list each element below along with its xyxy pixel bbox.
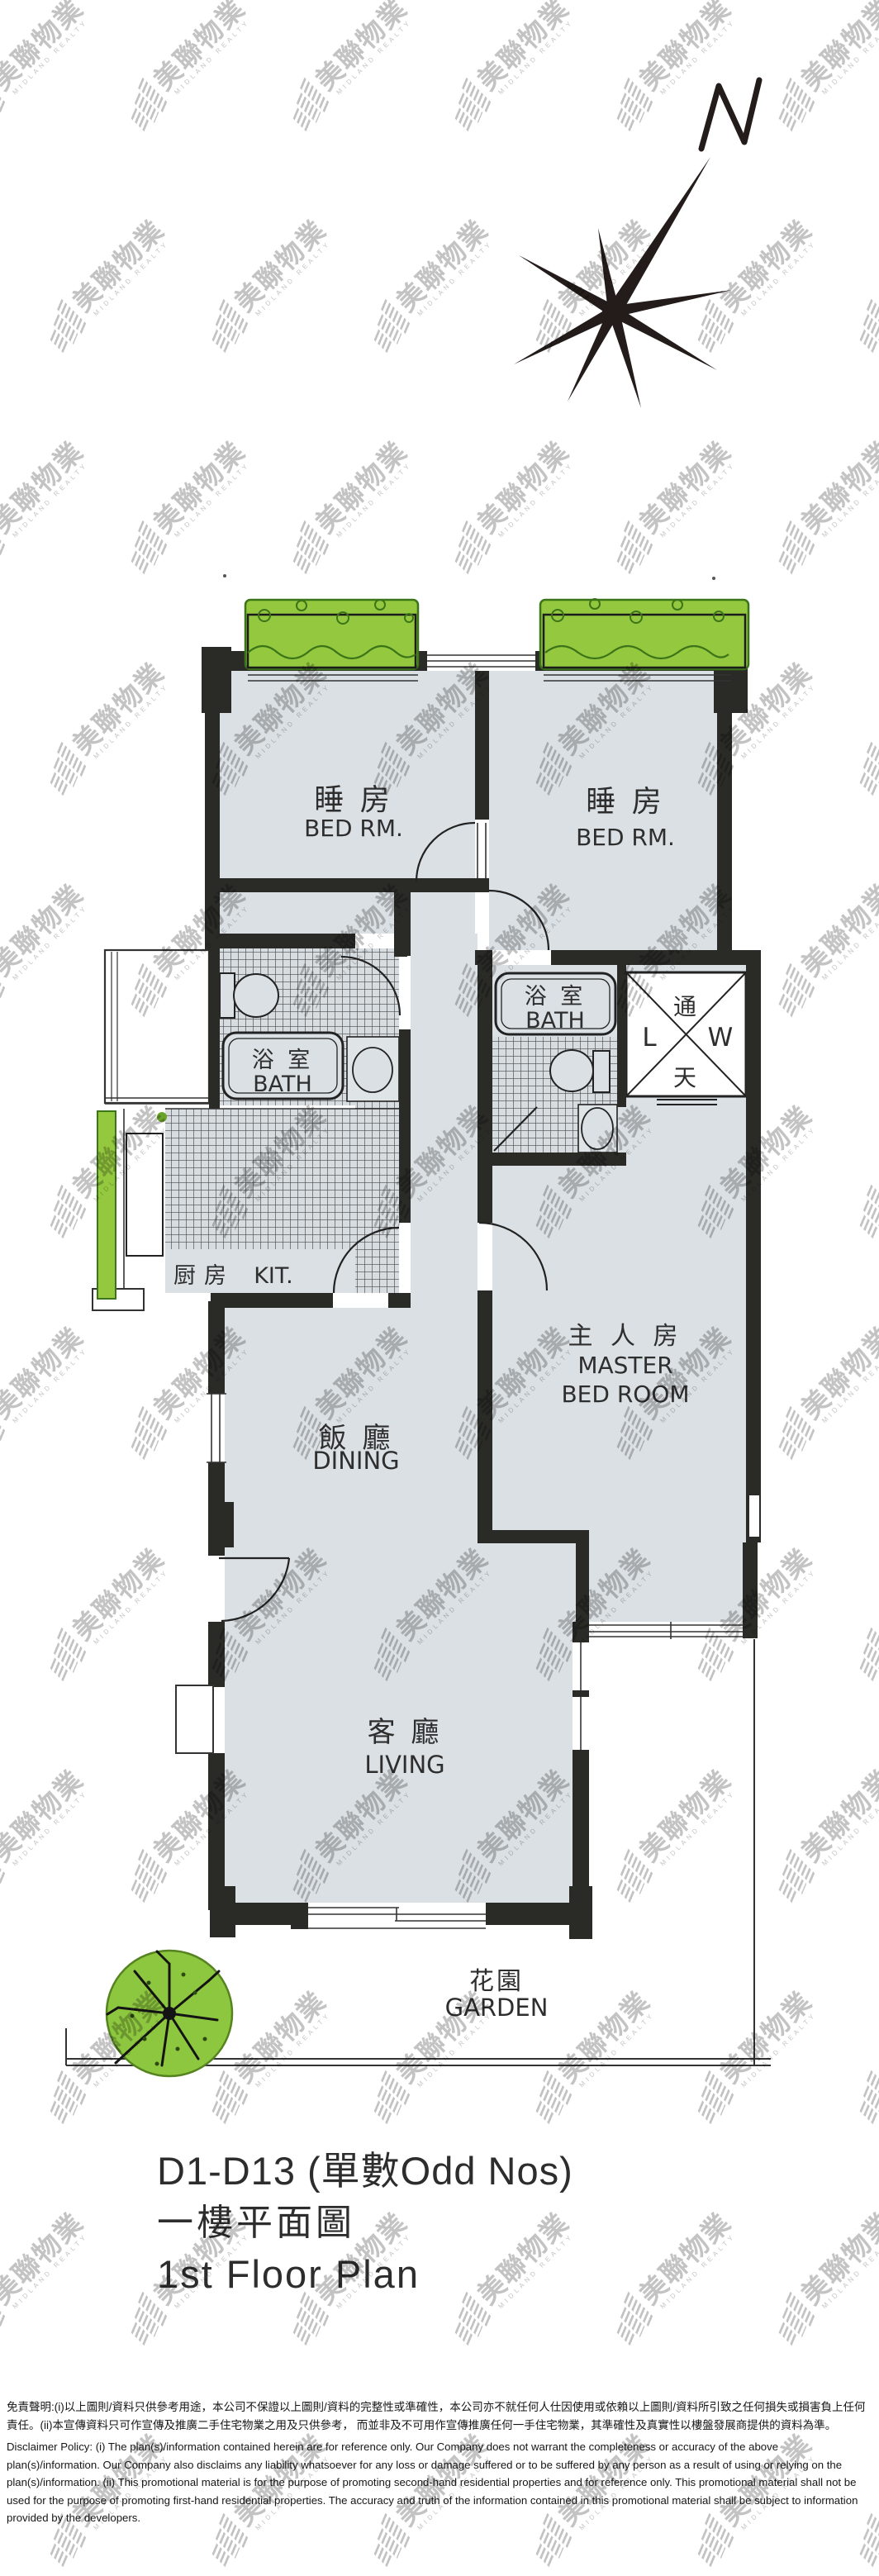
label-lightwell-left: L — [642, 1023, 657, 1053]
label-bath2-en: BATH — [525, 1008, 585, 1034]
label-bedroom1-zh: 睡 房 — [314, 783, 392, 817]
label-garden-zh: 花園 — [469, 1967, 524, 1996]
disclaimer-zh: 免責聲明:(i)以上圖則/資料只供參考用途，本公司不保證以上圖則/資料的完整性或… — [7, 2398, 871, 2435]
compass-rose — [514, 80, 759, 408]
disclaimer-block: 免責聲明:(i)以上圖則/資料只供參考用途，本公司不保證以上圖則/資料的完整性或… — [7, 2398, 871, 2527]
label-kitchen-zh: 厨房 — [173, 1263, 235, 1289]
disclaimer-en: Disclaimer Policy: (i) The plan(s)/infor… — [7, 2438, 871, 2527]
label-kitchen-en: KIT. — [254, 1263, 293, 1289]
room-floor-fills — [165, 671, 746, 1903]
label-living-en: LIVING — [364, 1751, 444, 1779]
label-lightwell-top: 通 — [673, 993, 696, 1020]
toilet-2 — [593, 1051, 610, 1092]
side-yard — [105, 950, 209, 1104]
scanned-floor-plan-page: 睡 房 BED RM. 睡 房 BED RM. 浴 室 BATH 浴 室 BAT… — [0, 0, 879, 2576]
label-lightwell-right: W — [708, 1023, 734, 1053]
floor-title-zh: 一樓平面圖 — [157, 2205, 573, 2241]
label-master-en1: MASTER — [577, 1352, 672, 1379]
basin-1 — [353, 1048, 392, 1092]
label-bath1-zh: 浴 室 — [252, 1048, 314, 1073]
north-arrow-glyph — [701, 80, 759, 149]
label-lightwell-bottom: 天 — [673, 1064, 696, 1091]
basin-2 — [582, 1108, 613, 1149]
label-dining-en: DINING — [312, 1447, 399, 1475]
label-master-zh: 主 人 房 — [568, 1322, 682, 1351]
plan-title-block: D1-D13 (單數Odd Nos) 一樓平面圖 1st Floor Plan — [157, 2151, 573, 2293]
label-bath1-en: BATH — [253, 1072, 312, 1097]
unit-range-title: D1-D13 (單數Odd Nos) — [157, 2151, 573, 2190]
label-bedroom2-zh: 睡 房 — [586, 785, 664, 819]
label-bedroom2-en: BED RM. — [576, 824, 675, 851]
garden-tree — [107, 1951, 232, 2076]
toilet-1 — [220, 973, 235, 1018]
label-master-en2: BED ROOM — [561, 1381, 689, 1408]
kitchen-counter — [126, 1134, 163, 1256]
label-garden-en: GARDEN — [445, 1994, 549, 2022]
label-bedroom1-en: BED RM. — [304, 815, 403, 842]
floor-title-en: 1st Floor Plan — [157, 2255, 573, 2293]
label-bath2-zh: 浴 室 — [525, 984, 587, 1010]
label-living-zh: 客 廳 — [368, 1716, 443, 1749]
